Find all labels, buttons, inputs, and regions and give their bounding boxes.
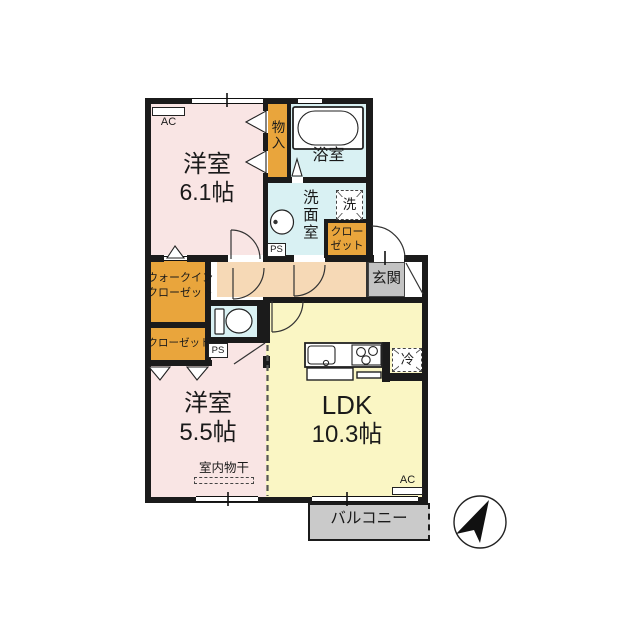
counter-cabinet (357, 372, 381, 378)
ldk-name: LDK (287, 391, 407, 421)
room2-name: 洋室 (148, 390, 268, 418)
door-arc (294, 265, 325, 296)
counter-cabinet (307, 368, 353, 380)
ac-label: AC (152, 116, 185, 129)
balcony-label: バルコニー (308, 510, 430, 528)
bathtub-icon (293, 107, 363, 149)
bath-label: 浴室 (291, 147, 366, 165)
wic-label-2: クローゼット (147, 287, 211, 300)
entrance-door-leaf (406, 263, 423, 294)
kitchen-counter (305, 343, 382, 380)
door-arc (233, 268, 264, 299)
washbasin-icon (271, 210, 294, 234)
room2-size: 5.5帖 (148, 419, 268, 447)
closet-door-mark (149, 367, 170, 380)
fridge-label: 冷 (399, 352, 416, 368)
toilet-icon (215, 309, 252, 334)
storage-label: 物入 (269, 120, 285, 170)
fixtures-layer (0, 0, 640, 640)
entrance-door-arc (372, 226, 405, 259)
room1-name: 洋室 (147, 151, 267, 179)
entrance-label: 玄関 (368, 271, 405, 288)
door-arc (231, 230, 260, 259)
indoor-drying-label: 室内物干 (188, 461, 260, 475)
closet-hall-label-1: クロー (326, 226, 368, 239)
room1-size: 6.1帖 (147, 179, 267, 205)
washer-label: 洗 (341, 197, 358, 213)
closet-hall-label-2: ゼット (326, 240, 368, 253)
ldk-size: 10.3帖 (287, 421, 407, 449)
kitchen-sink-icon (308, 346, 335, 364)
wic-label-1: ウォークイン (147, 272, 211, 285)
floor-plan: PS PS (0, 0, 640, 640)
wic-door-mark (167, 246, 184, 258)
north-arrow-icon (454, 496, 506, 548)
storage-door-mark (246, 111, 266, 133)
door-arc (272, 301, 303, 332)
closet-door-mark (187, 367, 208, 380)
washroom-label: 洗面室 (300, 189, 318, 251)
sliding-door-leaf (234, 343, 265, 364)
ac-label: AC (392, 474, 423, 487)
closet-west-label: クローゼット (146, 337, 212, 349)
